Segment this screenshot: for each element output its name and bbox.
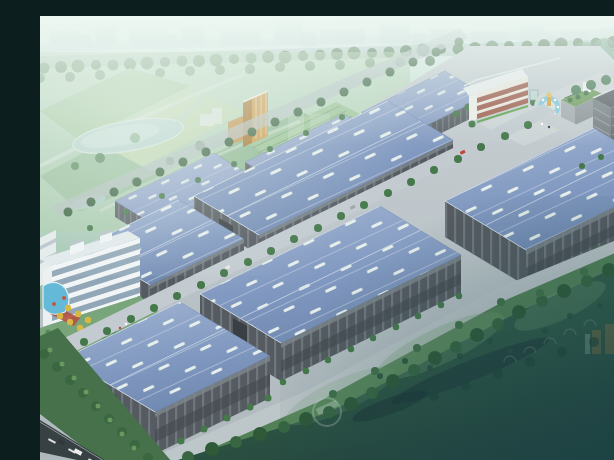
industrial-park-scene <box>40 16 614 460</box>
aerial-rendering <box>40 16 614 460</box>
fog-overlays <box>40 16 614 460</box>
